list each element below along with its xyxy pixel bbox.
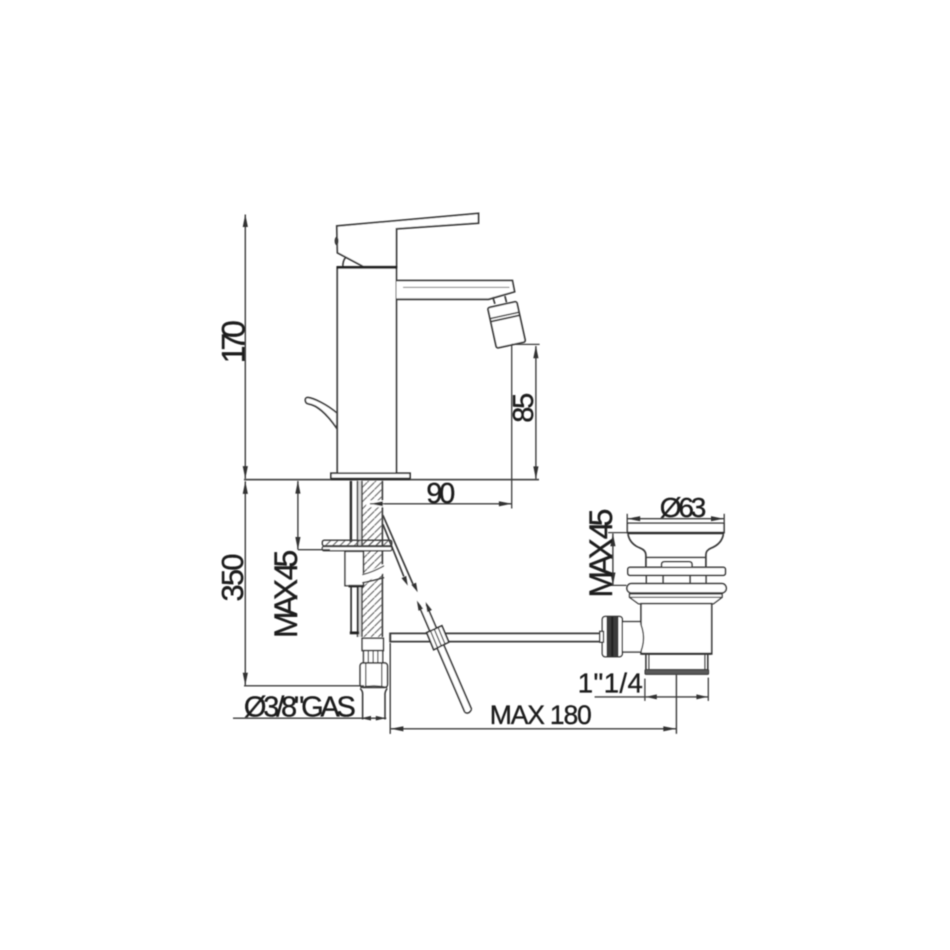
svg-text:MAX 45: MAX 45 [583,509,619,598]
svg-text:350: 350 [215,554,250,602]
svg-text:MAX 45: MAX 45 [268,550,304,638]
svg-text:90: 90 [426,478,455,510]
svg-text:Ø63: Ø63 [660,492,707,523]
svg-text:Ø3/8"GAS: Ø3/8"GAS [244,692,356,724]
svg-text:85: 85 [508,393,540,423]
svg-text:170: 170 [216,320,252,363]
svg-text:1"1/4: 1"1/4 [578,668,643,699]
svg-text:MAX 180: MAX 180 [490,700,592,730]
